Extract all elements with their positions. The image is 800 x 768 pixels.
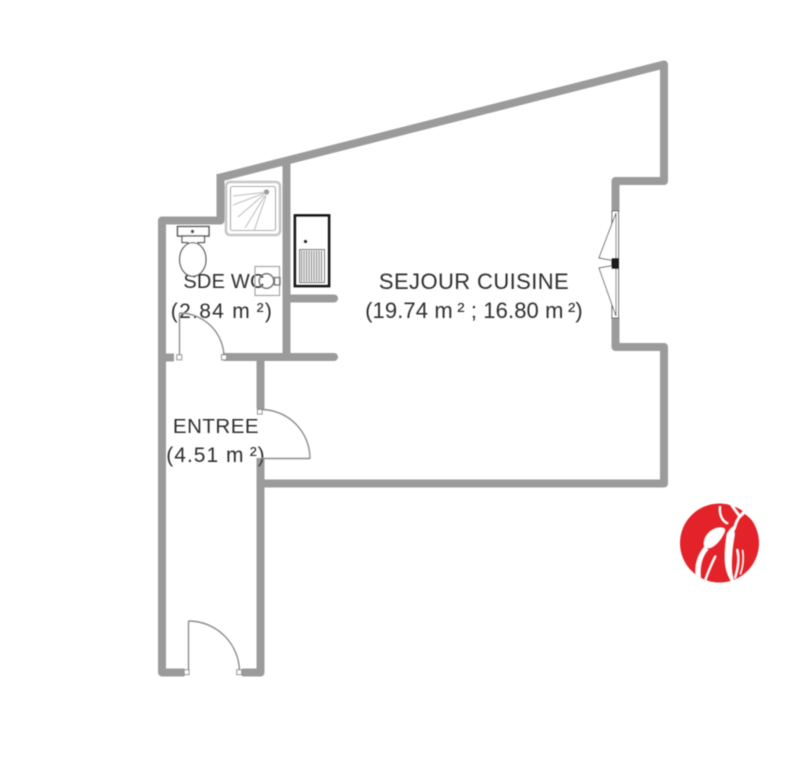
svg-text:(2.84 m ²): (2.84 m ²) bbox=[171, 300, 273, 323]
svg-text:SEJOUR CUISINE: SEJOUR CUISINE bbox=[379, 269, 569, 294]
svg-text:(19.74 m ² ; 16.80 m ²): (19.74 m ² ; 16.80 m ²) bbox=[365, 298, 583, 323]
svg-text:ENTREE: ENTREE bbox=[173, 415, 259, 438]
svg-text:(4.51 m ²): (4.51 m ²) bbox=[166, 444, 265, 467]
